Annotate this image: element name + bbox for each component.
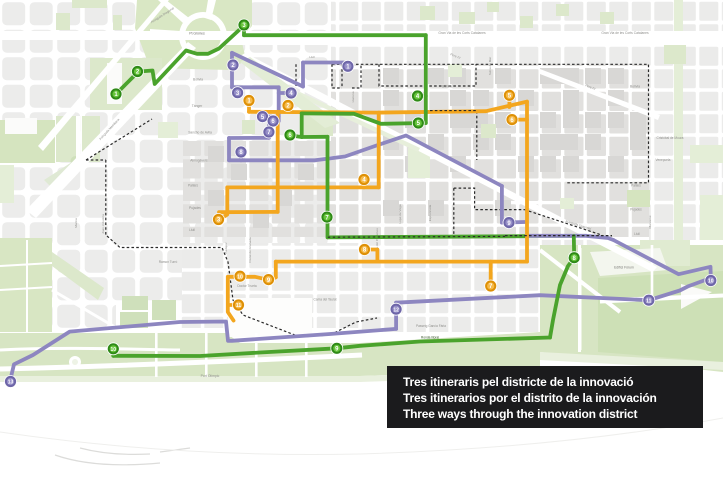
svg-text:Passeig García Fària: Passeig García Fària — [416, 324, 446, 328]
svg-text:Gran Via de les Corts Catalane: Gran Via de les Corts Catalanes — [438, 31, 486, 35]
svg-text:Port Olímpic: Port Olímpic — [201, 374, 220, 378]
svg-text:Ronda litoral: Ronda litoral — [421, 336, 439, 340]
svg-text:Doctor Trueta: Doctor Trueta — [237, 284, 257, 288]
svg-text:11: 11 — [236, 303, 242, 309]
svg-text:Pl.Glòries: Pl.Glòries — [189, 32, 205, 36]
svg-text:Ramon Turró: Ramon Turró — [159, 260, 178, 264]
svg-text:Pujades: Pujades — [630, 208, 642, 212]
svg-text:10: 10 — [111, 347, 117, 353]
svg-text:Edifici Fòrum: Edifici Fòrum — [614, 266, 634, 270]
svg-text:11: 11 — [646, 298, 652, 304]
svg-text:10: 10 — [708, 279, 714, 285]
svg-text:Lope de Vega: Lope de Vega — [398, 204, 402, 223]
svg-text:Gran Via de les Corts Catalane: Gran Via de les Corts Catalanes — [601, 31, 649, 35]
svg-text:Joan d Austria: Joan d Austria — [101, 214, 105, 234]
svg-text:Pallars: Pallars — [631, 184, 641, 188]
svg-text:Tànger: Tànger — [192, 104, 203, 108]
svg-text:Badajoz: Badajoz — [224, 242, 228, 254]
svg-text:Llull: Llull — [309, 55, 315, 59]
svg-text:Sancho de Avila: Sancho de Avila — [188, 131, 212, 135]
svg-text:10: 10 — [237, 274, 243, 280]
svg-text:13: 13 — [8, 380, 14, 386]
svg-text:Cristóbal de Moura: Cristóbal de Moura — [657, 136, 684, 140]
svg-text:Espronceda: Espronceda — [428, 204, 432, 221]
svg-text:Cama del Taulat: Cama del Taulat — [314, 298, 337, 302]
svg-text:Maresme: Maresme — [648, 215, 652, 228]
svg-text:Marina: Marina — [74, 218, 78, 228]
svg-text:Bolívia: Bolívia — [193, 78, 203, 82]
svg-text:Bolívia: Bolívia — [442, 85, 452, 89]
svg-text:Llacuna: Llacuna — [351, 91, 355, 102]
svg-text:12: 12 — [393, 307, 399, 313]
svg-text:Pallars: Pallars — [188, 184, 198, 188]
svg-text:Llull: Llull — [189, 228, 195, 232]
svg-text:Bolívia: Bolívia — [630, 85, 640, 89]
svg-text:Veneçuela: Veneçuela — [656, 158, 671, 162]
svg-text:Llull: Llull — [634, 232, 640, 236]
svg-text:Selva de Mar: Selva de Mar — [488, 57, 492, 75]
svg-text:Almogàvers: Almogàvers — [190, 159, 208, 163]
svg-text:Ciutat de Granada: Ciutat de Granada — [248, 237, 252, 263]
svg-text:Pujades: Pujades — [189, 206, 201, 210]
